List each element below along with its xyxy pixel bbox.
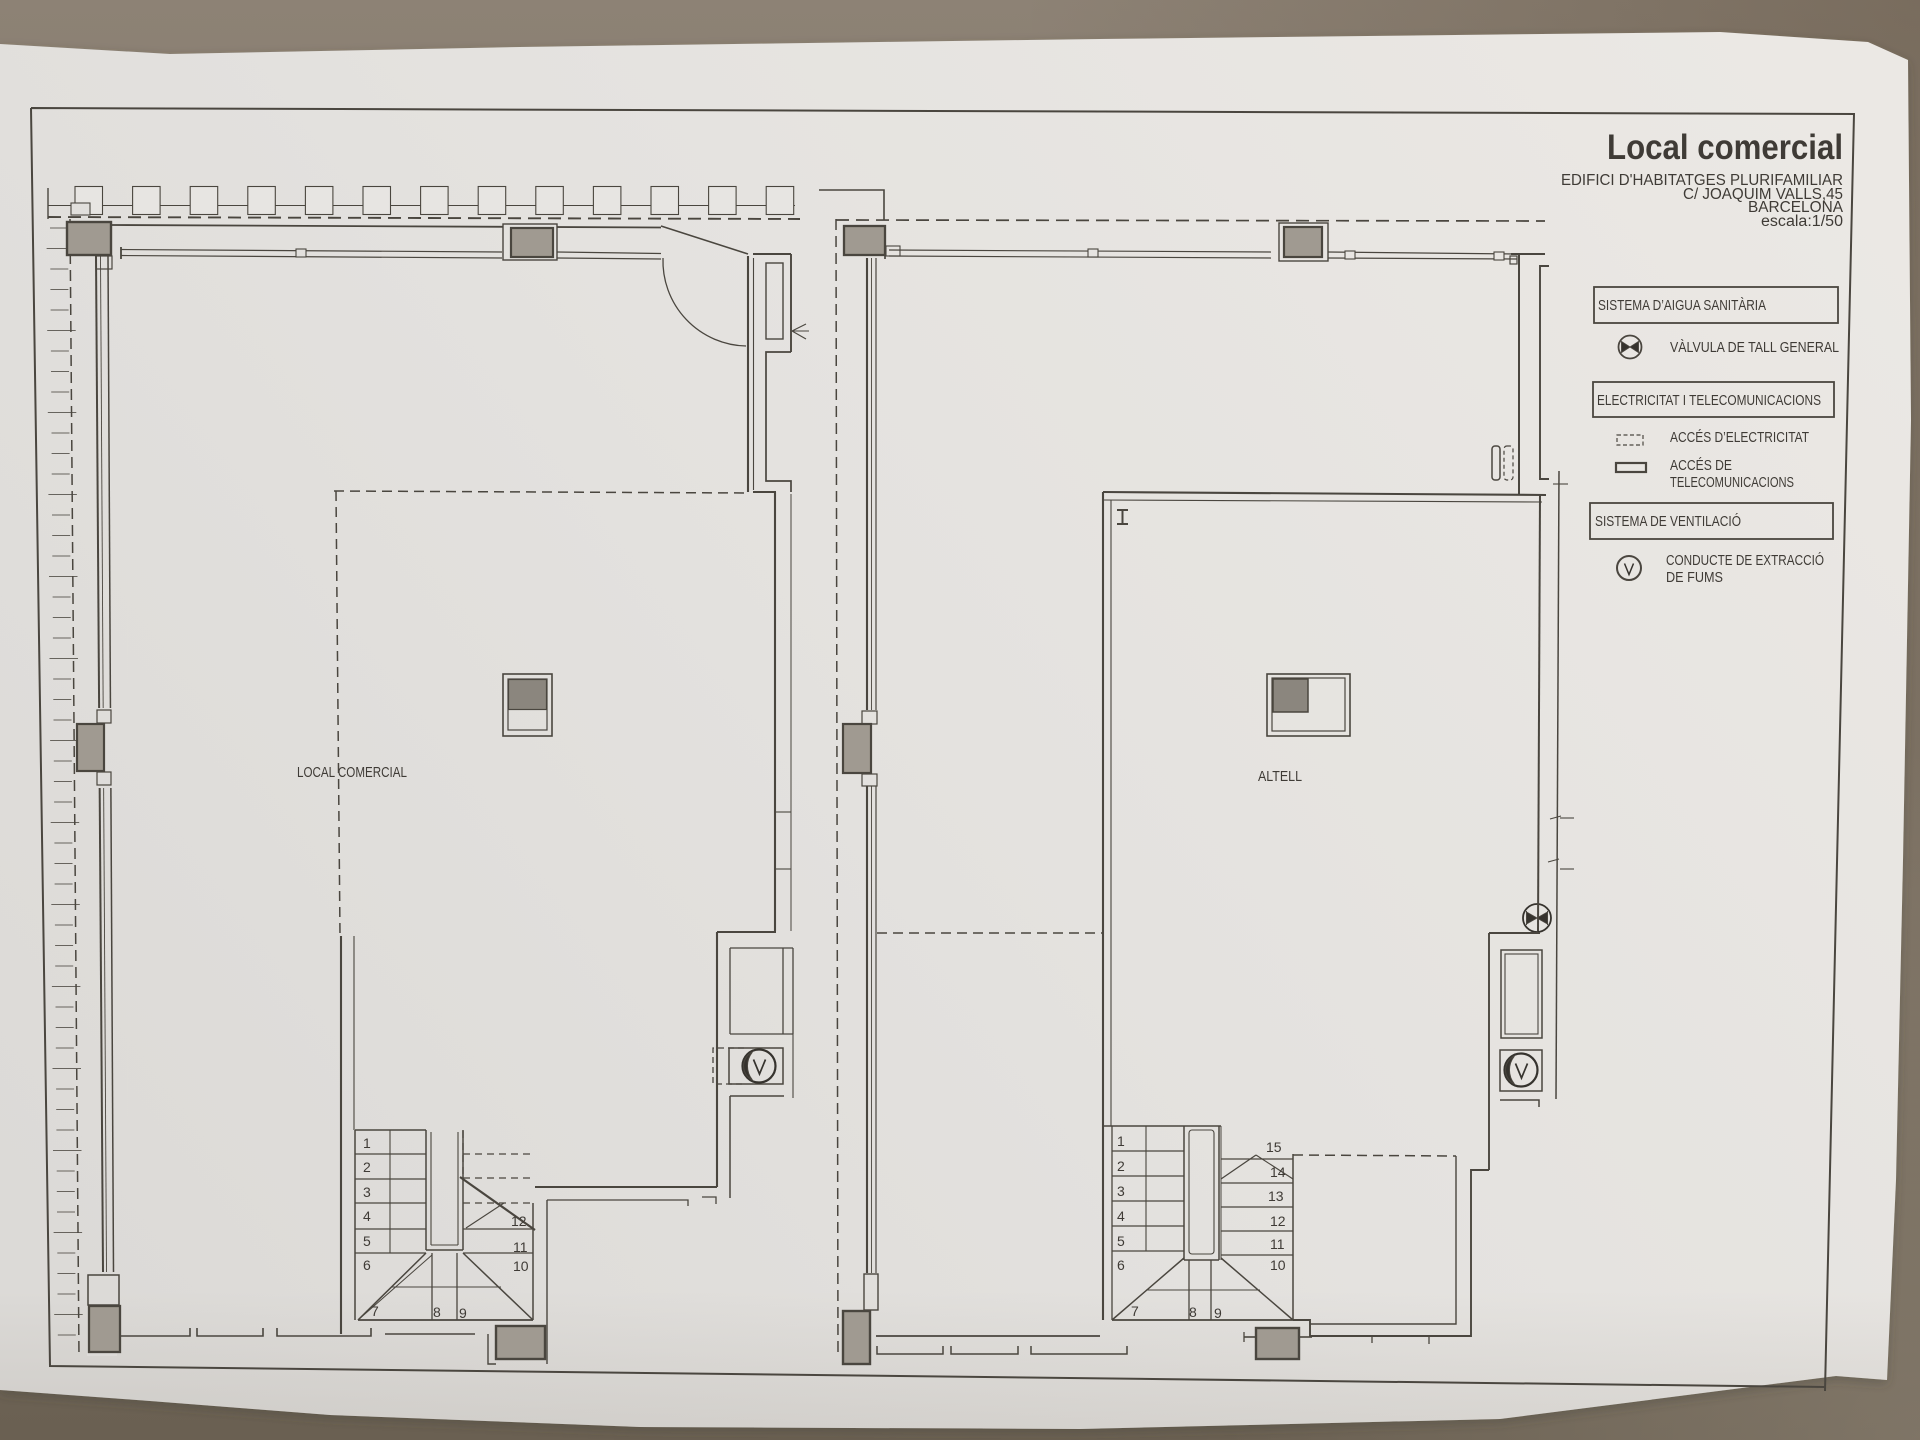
svg-text:SISTEMA D’AIGUA SANITÀRIA: SISTEMA D’AIGUA SANITÀRIA <box>1598 297 1766 314</box>
svg-text:ACCÉS D’ELECTRICITAT: ACCÉS D’ELECTRICITAT <box>1670 429 1809 446</box>
svg-text:12: 12 <box>511 1213 527 1229</box>
svg-text:9: 9 <box>1214 1305 1222 1321</box>
svg-text:1: 1 <box>363 1135 371 1151</box>
svg-text:CONDUCTE DE EXTRACCIÓ: CONDUCTE DE EXTRACCIÓ <box>1666 552 1824 569</box>
svg-text:6: 6 <box>363 1257 371 1273</box>
svg-text:11: 11 <box>1270 1236 1285 1252</box>
svg-text:3: 3 <box>363 1184 371 1200</box>
svg-text:VÀLVULA DE TALL GENERAL: VÀLVULA DE TALL GENERAL <box>1670 339 1839 356</box>
svg-text:7: 7 <box>1131 1303 1139 1319</box>
svg-text:5: 5 <box>363 1233 371 1249</box>
svg-text:ELECTRICITAT I TELECOMUNICACIO: ELECTRICITAT I TELECOMUNICACIONS <box>1597 392 1821 409</box>
svg-text:9: 9 <box>459 1305 467 1321</box>
svg-text:DE FUMS: DE FUMS <box>1666 569 1723 586</box>
svg-text:13: 13 <box>1268 1188 1284 1204</box>
svg-text:SISTEMA DE VENTILACIÓ: SISTEMA DE VENTILACIÓ <box>1595 513 1741 530</box>
svg-text:5: 5 <box>1117 1233 1125 1249</box>
svg-text:4: 4 <box>363 1208 371 1224</box>
svg-text:4: 4 <box>1117 1208 1125 1224</box>
svg-text:8: 8 <box>433 1304 441 1320</box>
svg-text:10: 10 <box>513 1258 529 1274</box>
svg-text:escala:1/50: escala:1/50 <box>1761 213 1843 230</box>
svg-text:3: 3 <box>1117 1183 1125 1199</box>
svg-text:TELECOMUNICACIONS: TELECOMUNICACIONS <box>1670 474 1794 491</box>
svg-text:15: 15 <box>1266 1139 1282 1155</box>
svg-text:ACCÉS DE: ACCÉS DE <box>1670 457 1732 474</box>
svg-text:ALTELL: ALTELL <box>1258 769 1302 785</box>
svg-text:Local comercial: Local comercial <box>1607 128 1843 167</box>
svg-text:6: 6 <box>1117 1257 1125 1273</box>
svg-text:LOCAL COMERCIAL: LOCAL COMERCIAL <box>297 765 407 781</box>
svg-text:14: 14 <box>1270 1164 1286 1180</box>
svg-text:12: 12 <box>1270 1213 1286 1229</box>
svg-text:10: 10 <box>1270 1257 1286 1273</box>
svg-text:2: 2 <box>1117 1158 1125 1174</box>
svg-text:2: 2 <box>363 1159 371 1175</box>
svg-text:1: 1 <box>1117 1133 1125 1149</box>
svg-text:8: 8 <box>1189 1304 1197 1320</box>
svg-text:7: 7 <box>371 1303 379 1319</box>
svg-text:11: 11 <box>513 1239 528 1255</box>
